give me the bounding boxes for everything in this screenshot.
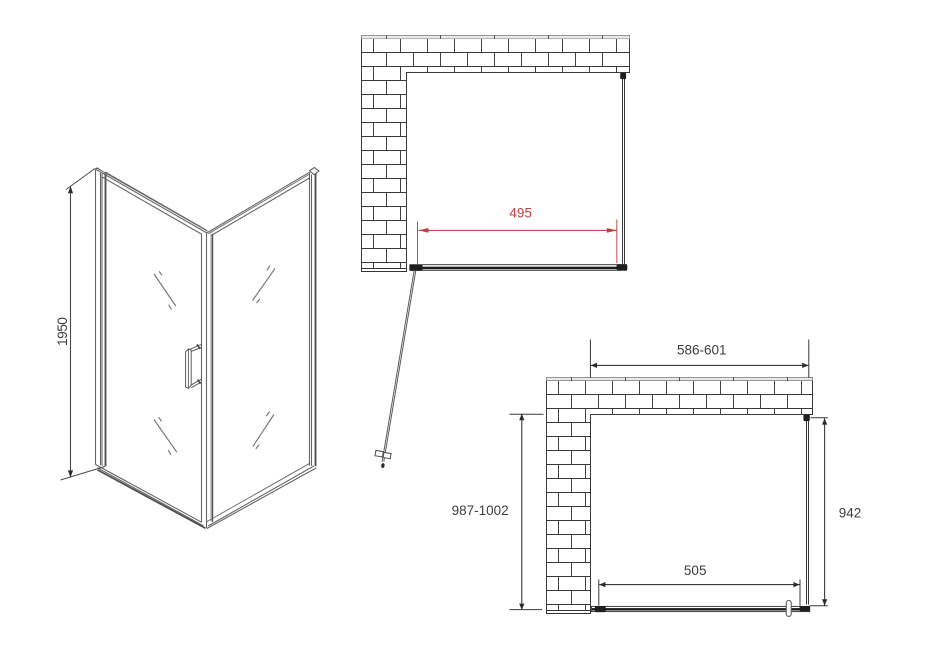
svg-text:495: 495 — [509, 206, 532, 221]
svg-text:505: 505 — [684, 563, 707, 578]
svg-text:987-1002: 987-1002 — [452, 503, 509, 518]
svg-text:942: 942 — [839, 506, 862, 521]
svg-text:586-601: 586-601 — [677, 342, 727, 357]
svg-text:1950: 1950 — [55, 317, 70, 346]
